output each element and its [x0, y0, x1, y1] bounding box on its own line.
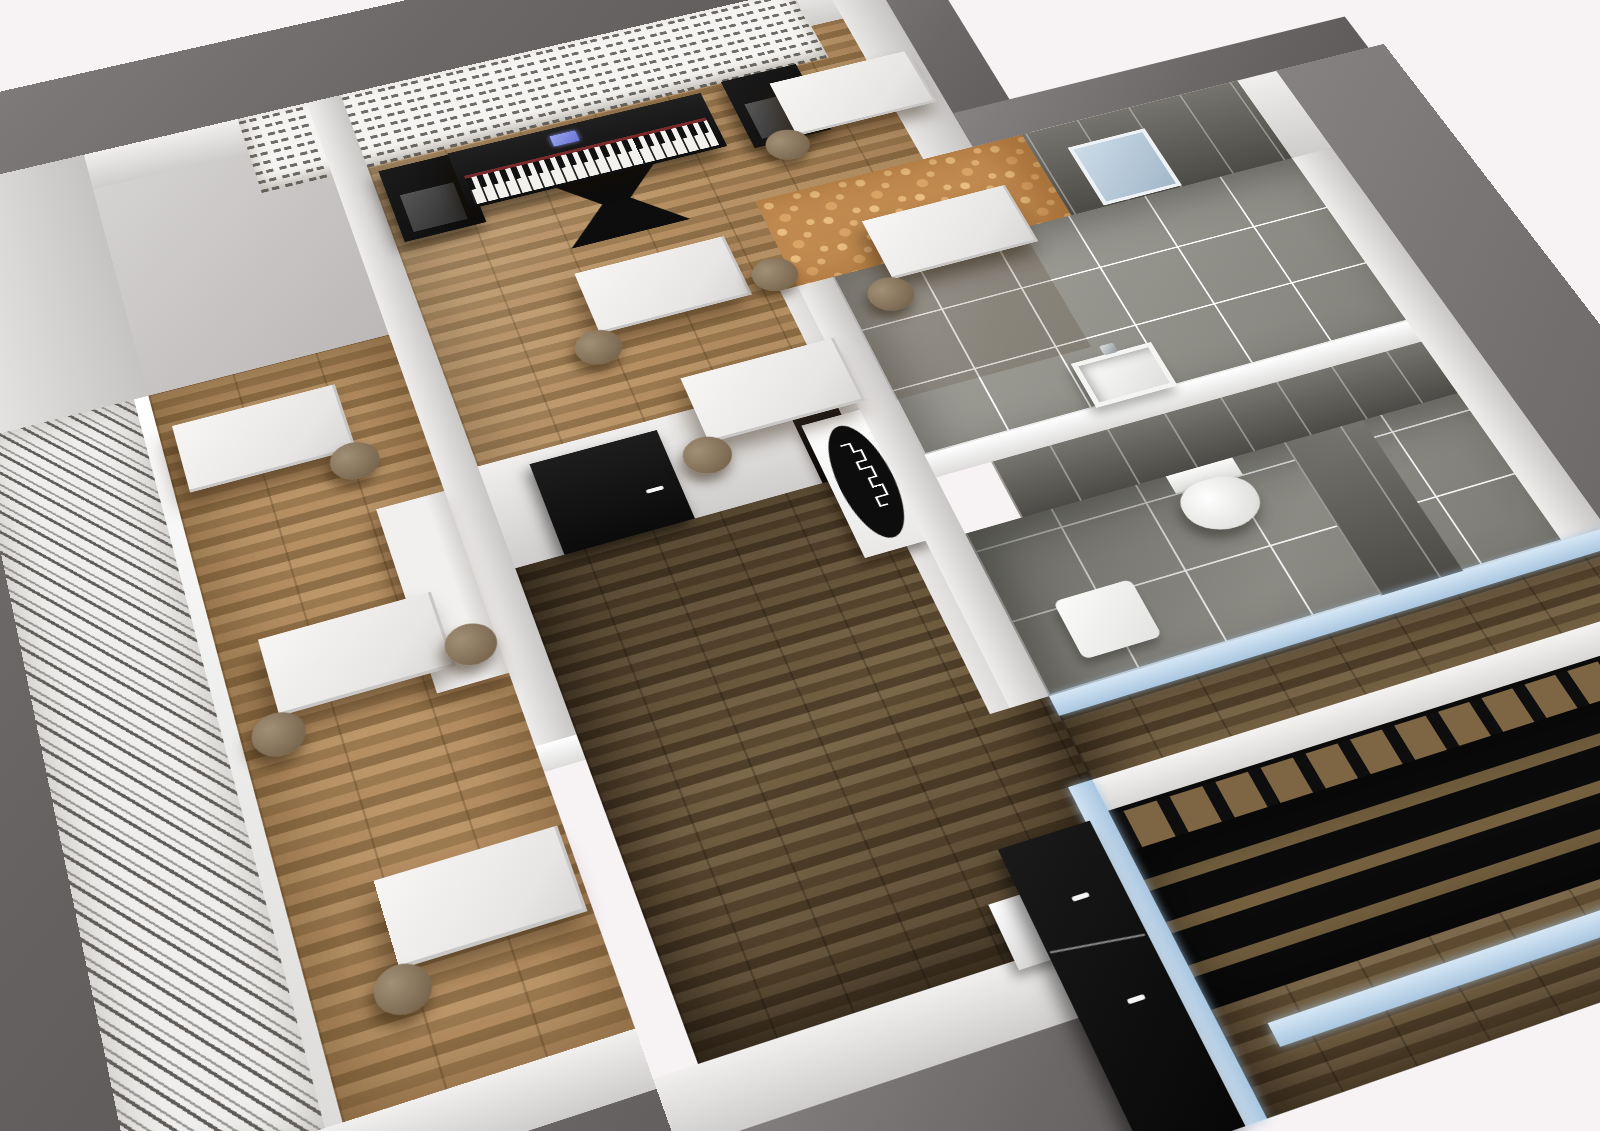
render-canvas	[0, 0, 1600, 1131]
scene-3d	[0, 0, 1600, 1131]
floorplan	[0, 0, 1600, 1131]
speaker-cone	[400, 182, 468, 232]
